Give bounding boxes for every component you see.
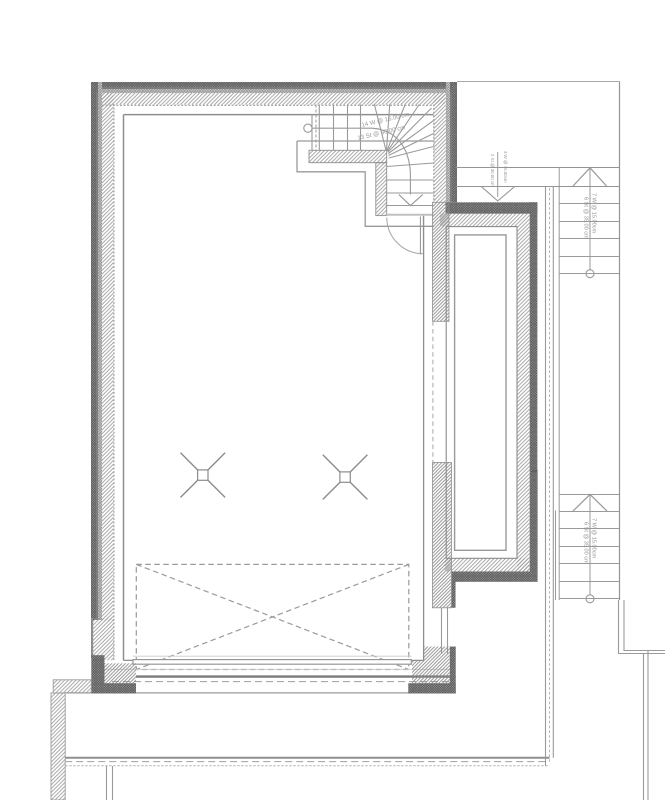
svg-text:7 W @ 15.00cm: 7 W @ 15.00cm	[591, 193, 597, 234]
svg-text:7 W @ 15.00cm: 7 W @ 15.00cm	[591, 518, 597, 559]
svg-text:6 St @ 35.00 cm: 6 St @ 35.00 cm	[583, 197, 589, 239]
svg-text:6 St @ 35.00 cm: 6 St @ 35.00 cm	[583, 522, 589, 564]
svg-text:3 W @ 16.50cm: 3 W @ 16.50cm	[503, 151, 508, 183]
svg-text:2 St @ 30.00 cm: 2 St @ 30.00 cm	[490, 154, 495, 187]
